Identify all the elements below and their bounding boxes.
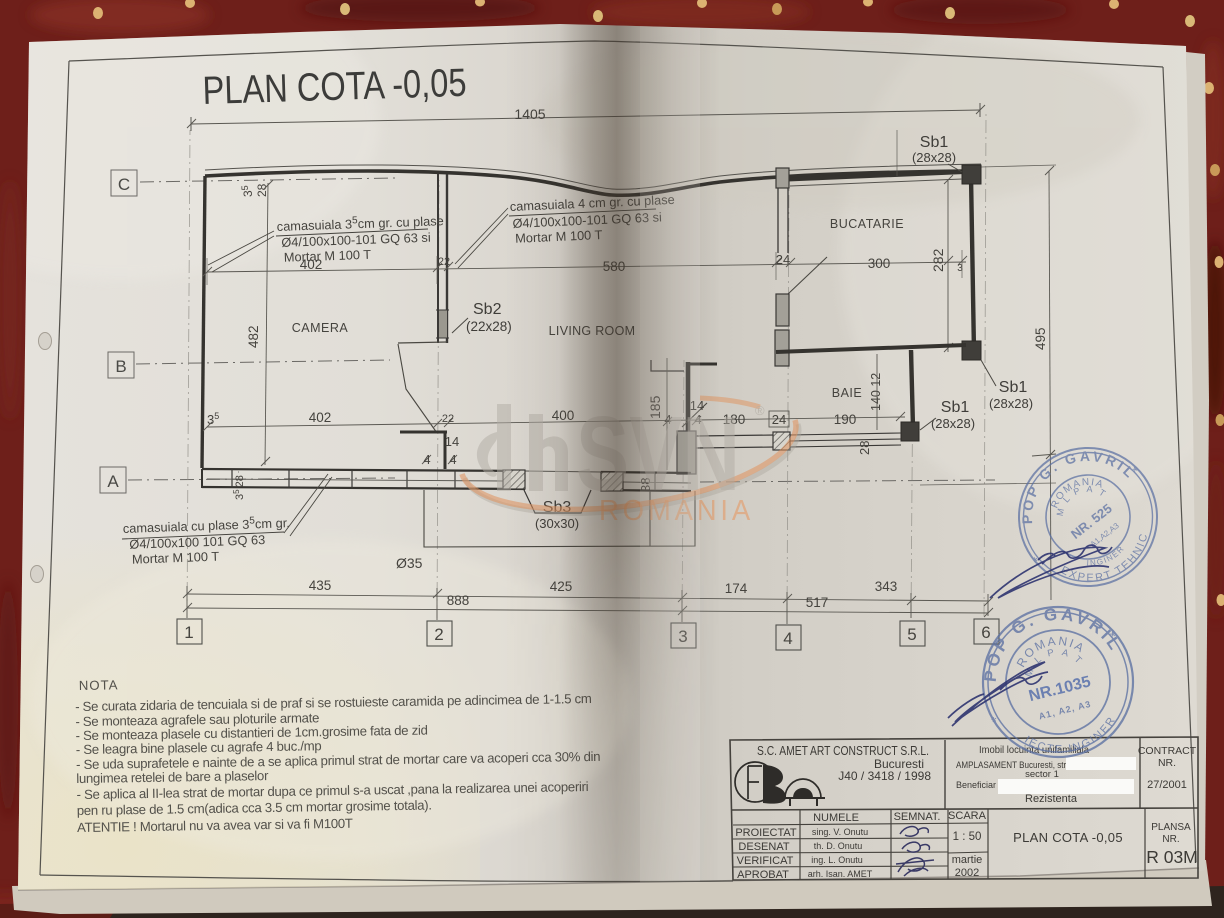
svg-text:Ø35: Ø35 xyxy=(396,555,423,571)
svg-text:®: ® xyxy=(755,403,765,418)
svg-text:J40 / 3418 / 1998: J40 / 3418 / 1998 xyxy=(838,769,931,783)
svg-text:VERIFICAT: VERIFICAT xyxy=(737,855,794,867)
svg-text:24: 24 xyxy=(776,252,790,267)
svg-text:NOTA: NOTA xyxy=(79,677,119,693)
svg-text:343: 343 xyxy=(875,579,898,594)
svg-text:2: 2 xyxy=(434,625,443,644)
svg-text:(28x28): (28x28) xyxy=(989,396,1033,411)
svg-text:PLANSA: PLANSA xyxy=(1151,822,1191,833)
svg-text:1 : 50: 1 : 50 xyxy=(953,831,982,843)
svg-text:2002: 2002 xyxy=(955,867,979,879)
svg-text:28: 28 xyxy=(255,183,269,197)
svg-text:CONTRACT: CONTRACT xyxy=(1138,745,1197,757)
svg-text:6: 6 xyxy=(981,623,990,642)
svg-text:22: 22 xyxy=(438,256,450,268)
svg-text:CAMERA: CAMERA xyxy=(292,321,349,335)
svg-text:4: 4 xyxy=(783,629,792,648)
svg-text:arh. Isan. AMET: arh. Isan. AMET xyxy=(808,869,873,879)
svg-text:(22x28): (22x28) xyxy=(466,319,512,334)
svg-text:22: 22 xyxy=(442,413,454,425)
svg-text:C: C xyxy=(118,175,130,194)
svg-text:Mortar M 100 T: Mortar M 100 T xyxy=(132,549,220,567)
svg-text:SEMNAT.: SEMNAT. xyxy=(894,811,941,823)
svg-text:Beneficiar: Beneficiar xyxy=(956,780,996,790)
svg-text:NR.: NR. xyxy=(1162,834,1179,845)
svg-text:140 12: 140 12 xyxy=(869,373,883,411)
svg-text:ing. L. Onutu: ing. L. Onutu xyxy=(811,855,863,865)
svg-text:PLAN COTA -0,05: PLAN COTA -0,05 xyxy=(1013,830,1123,845)
svg-text:(28x28): (28x28) xyxy=(912,150,956,165)
svg-text:martie: martie xyxy=(952,854,983,866)
svg-text:Rezistenta: Rezistenta xyxy=(1025,793,1078,805)
svg-text:BAIE: BAIE xyxy=(832,386,863,400)
svg-text:174: 174 xyxy=(725,581,748,596)
svg-text:1: 1 xyxy=(184,623,193,642)
svg-text:Sb2: Sb2 xyxy=(473,301,502,318)
svg-text:495: 495 xyxy=(1033,327,1048,350)
svg-text:888: 888 xyxy=(447,593,470,608)
svg-text:R 03M: R 03M xyxy=(1146,847,1198,867)
svg-text:SCARA: SCARA xyxy=(948,810,987,822)
svg-text:27/2001: 27/2001 xyxy=(1147,779,1187,791)
svg-text:4: 4 xyxy=(423,452,430,467)
svg-text:300: 300 xyxy=(868,256,891,271)
svg-text:sing. V. Onutu: sing. V. Onutu xyxy=(812,827,868,837)
svg-text:402: 402 xyxy=(309,410,332,425)
svg-text:A: A xyxy=(107,472,119,491)
svg-text:lungimea retelei de bare a pla: lungimea retelei de bare a plaselor xyxy=(76,768,269,786)
svg-text:BUCATARIE: BUCATARIE xyxy=(830,217,904,231)
svg-text:NR.: NR. xyxy=(1158,757,1176,769)
svg-text:APROBAT: APROBAT xyxy=(737,869,789,881)
svg-text:14: 14 xyxy=(445,434,459,449)
svg-text:PROIECTAT: PROIECTAT xyxy=(735,827,797,839)
svg-text:DESENAT: DESENAT xyxy=(738,841,789,853)
svg-text:482: 482 xyxy=(246,325,261,348)
svg-text:sector 1: sector 1 xyxy=(1025,769,1059,780)
svg-text:S.C. AMET ART CONSTRUCT S.R.L.: S.C. AMET ART CONSTRUCT S.R.L. xyxy=(757,744,929,758)
svg-text:(28x28): (28x28) xyxy=(931,416,975,431)
svg-text:NUMELE: NUMELE xyxy=(813,812,859,824)
svg-text:190: 190 xyxy=(834,412,857,427)
svg-text:B: B xyxy=(115,357,126,376)
svg-text:Sb1: Sb1 xyxy=(941,399,970,416)
svg-text:3528.: 3528. xyxy=(232,471,246,500)
svg-text:Sb1: Sb1 xyxy=(920,134,949,151)
svg-text:Mortar M 100 T: Mortar M 100 T xyxy=(284,247,372,265)
svg-text:28: 28 xyxy=(857,441,872,455)
svg-text:282: 282 xyxy=(930,248,946,272)
svg-text:517: 517 xyxy=(806,595,829,610)
svg-text:Sb1: Sb1 xyxy=(999,379,1028,396)
svg-text:5: 5 xyxy=(907,625,916,644)
svg-text:435: 435 xyxy=(309,578,332,593)
svg-text:th. D. Onutu: th. D. Onutu xyxy=(814,841,863,851)
svg-text:PLAN COTA -0,05: PLAN COTA -0,05 xyxy=(202,61,467,113)
svg-text:4: 4 xyxy=(449,452,456,467)
svg-text:24: 24 xyxy=(772,412,786,427)
